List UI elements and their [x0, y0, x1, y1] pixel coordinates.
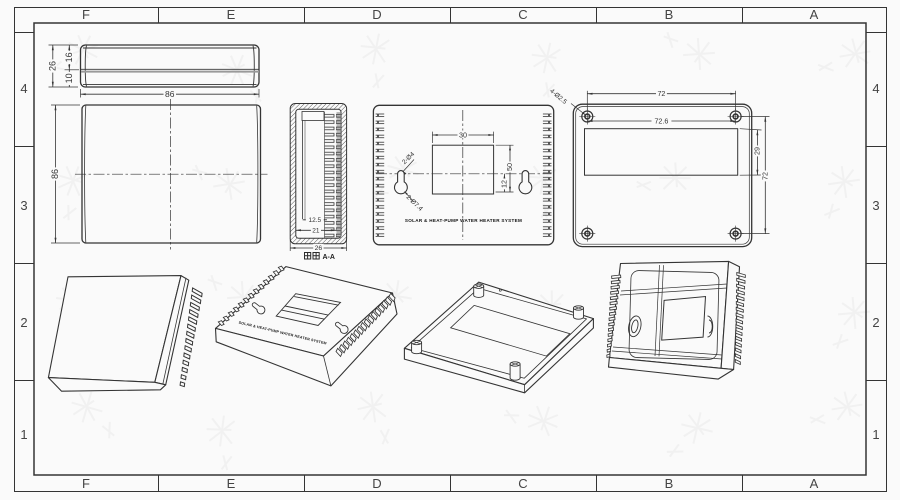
- svg-text:72: 72: [760, 172, 769, 180]
- svg-text:A-A: A-A: [323, 254, 335, 261]
- svg-text:86: 86: [165, 89, 175, 99]
- svg-text:12.5: 12.5: [308, 217, 321, 224]
- svg-text:4: 4: [872, 81, 879, 96]
- svg-text:E: E: [227, 7, 236, 22]
- svg-text:D: D: [372, 7, 381, 22]
- svg-text:E: E: [227, 476, 236, 491]
- svg-text:C: C: [518, 7, 527, 22]
- svg-text:F: F: [82, 476, 90, 491]
- svg-text:29: 29: [753, 147, 762, 155]
- svg-text:26: 26: [315, 245, 323, 252]
- svg-text:3: 3: [872, 198, 879, 213]
- svg-text:B: B: [665, 7, 674, 22]
- svg-text:A: A: [810, 476, 819, 491]
- svg-text:16: 16: [64, 52, 74, 62]
- svg-text:86: 86: [50, 169, 60, 179]
- svg-text:50: 50: [505, 163, 514, 171]
- svg-text:B: B: [665, 476, 674, 491]
- svg-text:26: 26: [48, 61, 58, 71]
- svg-text:1: 1: [872, 427, 879, 442]
- svg-text:2: 2: [872, 315, 879, 330]
- svg-text:4: 4: [20, 81, 27, 96]
- svg-text:12: 12: [500, 180, 509, 188]
- svg-text:10: 10: [64, 73, 74, 83]
- svg-text:F: F: [82, 7, 90, 22]
- svg-text:2: 2: [20, 315, 27, 330]
- svg-text:3: 3: [20, 198, 27, 213]
- svg-text:72.6: 72.6: [654, 116, 668, 125]
- svg-text:1: 1: [20, 427, 27, 442]
- svg-text:30: 30: [459, 130, 467, 139]
- svg-text:D: D: [372, 476, 381, 491]
- svg-text:SOLAR & HEAT-PUMP WATER HEATER: SOLAR & HEAT-PUMP WATER HEATER SYSTEM: [405, 218, 522, 223]
- svg-text:21: 21: [312, 227, 320, 234]
- svg-text:72: 72: [657, 89, 665, 98]
- svg-text:A: A: [810, 7, 819, 22]
- svg-text:C: C: [518, 476, 527, 491]
